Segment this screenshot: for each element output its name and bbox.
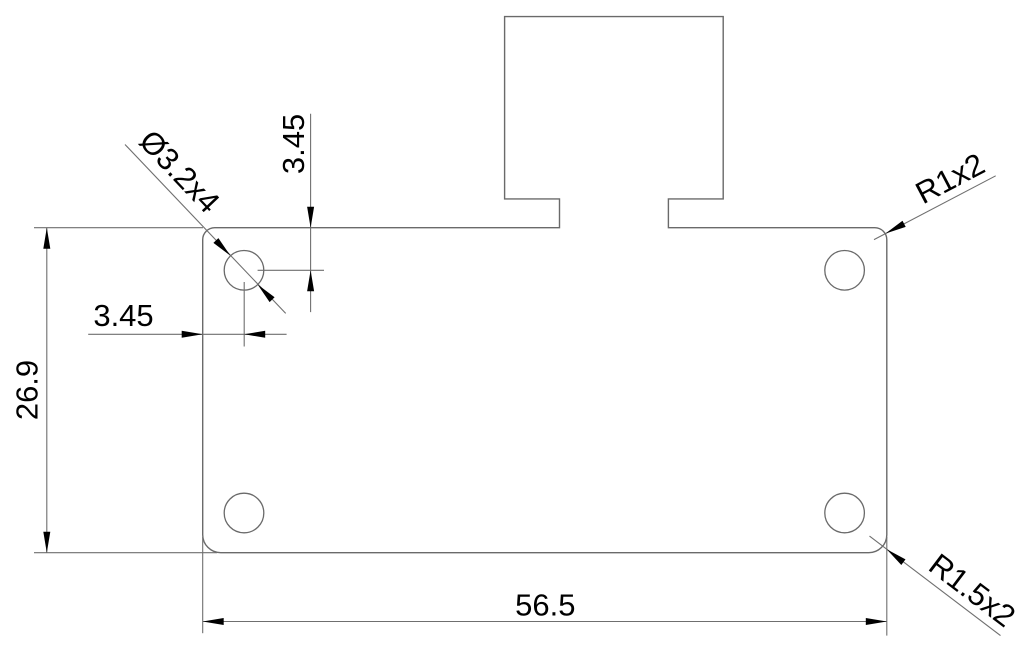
svg-text:3.45: 3.45 [93,298,153,333]
svg-text:26.9: 26.9 [10,360,45,420]
svg-text:3.45: 3.45 [276,114,311,174]
svg-text:56.5: 56.5 [515,588,575,623]
